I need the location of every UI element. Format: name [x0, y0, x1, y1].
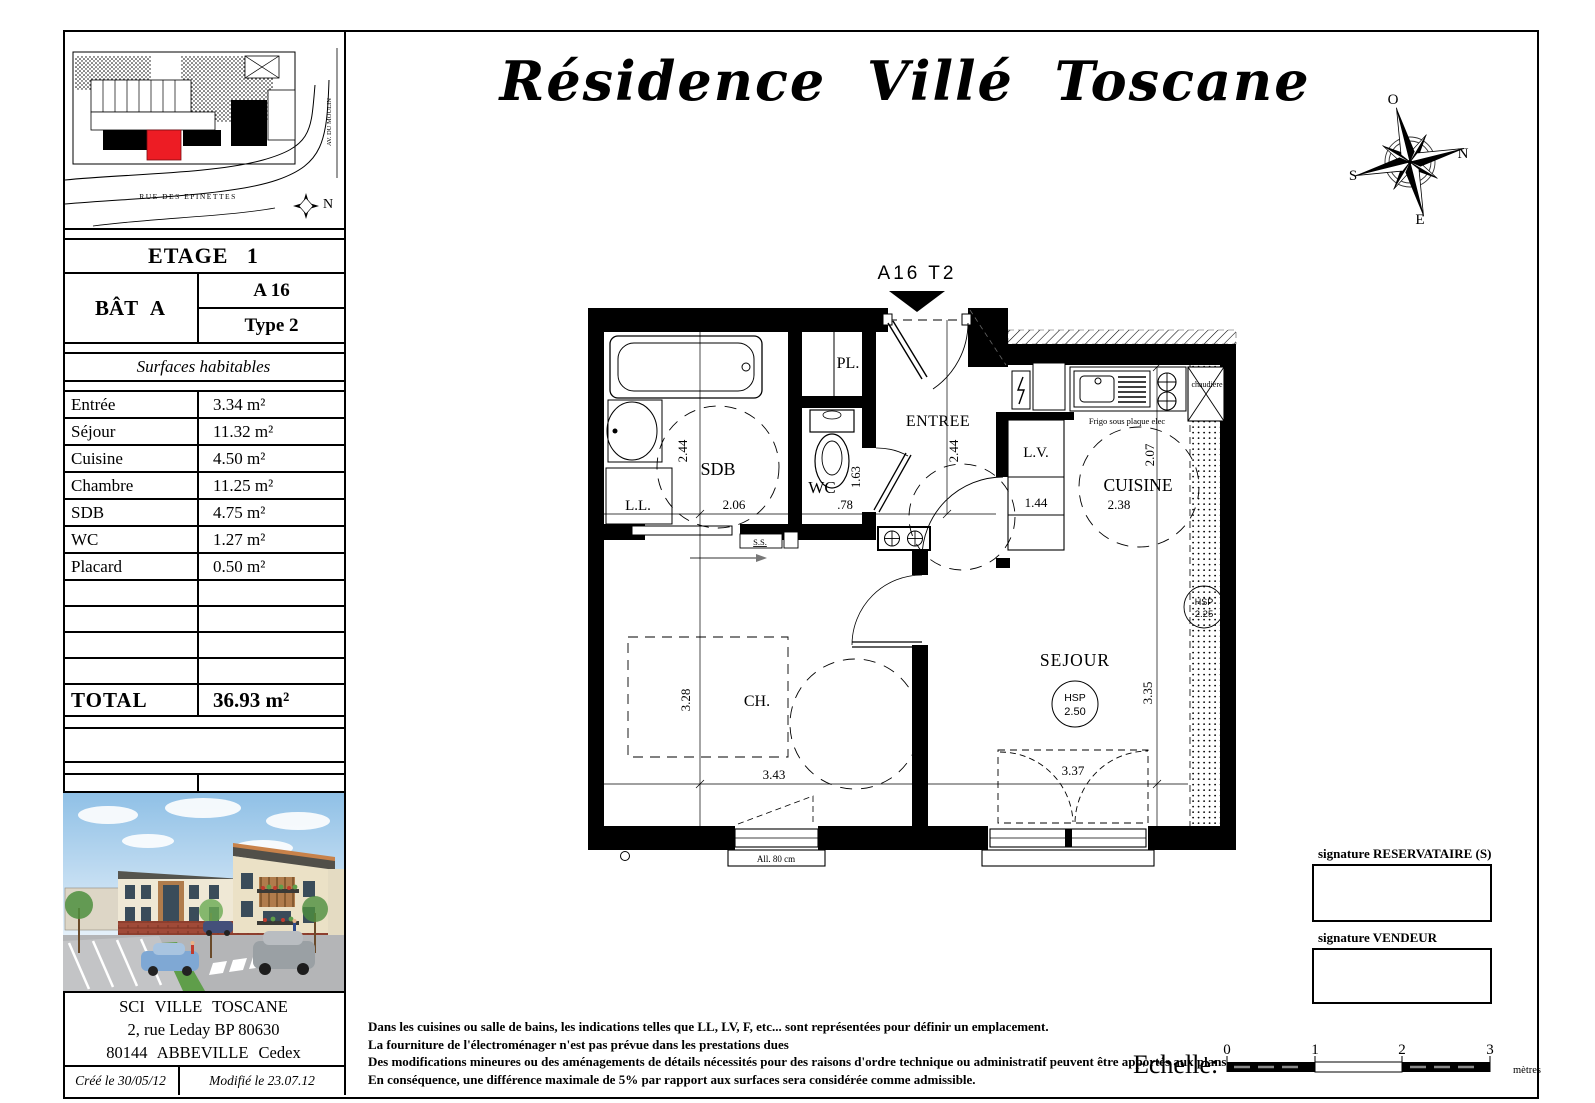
table-row: Cuisine 4.50 m²: [63, 446, 344, 473]
washbasin-icon: [607, 400, 662, 462]
room-label: Placard: [63, 554, 199, 579]
allege-label: All. 80 cm: [757, 854, 795, 864]
room-label: SDB: [63, 500, 199, 525]
room-label-sdb: SDB: [700, 459, 735, 479]
hsp-label-2: HSP: [1195, 597, 1214, 607]
unit-tag: A16 T2: [878, 263, 957, 284]
spacer-row: [63, 763, 344, 775]
compass-rose-icon: O N S E: [1332, 82, 1472, 237]
room-label-placard: PL.: [837, 355, 860, 372]
created-date: Créé le 30/05/12: [63, 1067, 180, 1095]
terrace-hatch: [1008, 330, 1236, 344]
spacer-row: [63, 230, 344, 240]
empty-row: [63, 633, 344, 659]
compass-east-label: E: [1415, 212, 1424, 228]
hsp-sejour: HSP 2.50: [1052, 681, 1098, 727]
room-area: 3.34 m²: [199, 392, 344, 417]
room-area: 4.50 m²: [199, 446, 344, 471]
dim-sejour-w: 3.37: [1062, 763, 1085, 778]
surfaces-title: Surfaces habitables: [63, 354, 344, 382]
hsp-loggia-value: 2.25: [1195, 609, 1214, 620]
dim-entree-h: 2.44: [946, 439, 961, 462]
site-north-label: N: [323, 197, 333, 212]
company-street: 2, rue Leday BP 80630: [128, 1018, 280, 1041]
frigo-note: Frigo sous plaque elec: [1089, 416, 1165, 426]
empty-row: [63, 581, 344, 607]
signature-reservataire-label: signature RESERVATAIRE (S): [1318, 846, 1491, 862]
highlighted-unit: [147, 130, 181, 160]
total-row: TOTAL 36.93 m²: [63, 685, 344, 717]
dim-cuisine-w: 2.38: [1108, 497, 1131, 512]
street-label: RUE DES EPINETTES: [139, 192, 237, 201]
table-row: Chambre 11.25 m²: [63, 473, 344, 500]
scale-tick-0: 0: [1223, 1042, 1231, 1058]
boiler-box: [1188, 367, 1224, 421]
chaudiere-note: chaudière: [1191, 380, 1223, 389]
left-panel: RUE DES EPINETTES AV. DU MOULIN N ETAGE …: [63, 30, 346, 1095]
room-area: 0.50 m²: [199, 554, 344, 579]
company-address: SCI VILLE TOSCANE 2, rue Leday BP 80630 …: [63, 993, 344, 1067]
floor-plan: A16 T2: [570, 255, 1250, 870]
room-label: WC: [63, 527, 199, 552]
room-label-ll: L.L.: [625, 498, 651, 514]
room-label: Séjour: [63, 419, 199, 444]
room-label-lv: L.V.: [1023, 445, 1049, 461]
table-row: Séjour 11.32 m²: [63, 419, 344, 446]
room-label-entree: ENTREE: [906, 413, 970, 430]
dim-ch-w: 3.43: [763, 767, 786, 782]
hsp-sejour-value: 2.50: [1064, 706, 1085, 718]
compass-west-label: O: [1388, 92, 1399, 108]
company-city: 80144 ABBEVILLE Cedex: [106, 1041, 300, 1064]
wc-door: [874, 448, 911, 512]
room-label: Entrée: [63, 392, 199, 417]
bedroom-window: All. 80 cm: [728, 796, 825, 866]
radiator-icon: [878, 527, 930, 550]
room-area: 4.75 m²: [199, 500, 344, 525]
room-area: 1.27 m²: [199, 527, 344, 552]
site-compass-icon: N: [293, 193, 333, 219]
spacer-row: [63, 382, 344, 392]
dim-sejour-h: 3.35: [1140, 682, 1155, 705]
scale-tick-2: 2: [1398, 1042, 1406, 1058]
toilet-icon: [810, 410, 854, 488]
room-label: Chambre: [63, 473, 199, 498]
room-label-chambre: CH.: [744, 693, 770, 710]
dim-wc-w: .78: [837, 498, 853, 512]
empty-row: [63, 607, 344, 633]
site-plan-drawing: RUE DES EPINETTES AV. DU MOULIN N: [63, 30, 344, 228]
dishwasher-unit: [1008, 420, 1064, 550]
scale-bar: 0 1 2 3 mètres: [1200, 1038, 1545, 1093]
hsp-label: HSP: [1064, 692, 1086, 704]
table-row: SDB 4.75 m²: [63, 500, 344, 527]
lot-number: A 16: [199, 274, 344, 309]
table-row: Entrée 3.34 m²: [63, 392, 344, 419]
company-name: SCI VILLE TOSCANE: [119, 995, 288, 1018]
building-label: BÂT A: [63, 274, 199, 342]
scale-unit: mètres: [1513, 1065, 1541, 1076]
ss-label: S.S.: [753, 537, 767, 547]
table-row: WC 1.27 m²: [63, 527, 344, 554]
page-title: Résidence Villé Toscane: [550, 42, 1260, 120]
kitchen-counter: [1070, 367, 1186, 411]
room-label: Cuisine: [63, 446, 199, 471]
total-label: TOTAL: [63, 685, 199, 715]
dim-entree-w: 1.44: [1025, 495, 1048, 510]
spacer-row: [63, 344, 344, 354]
entrance-marker-icon: [889, 291, 945, 312]
room-area: 11.32 m²: [199, 419, 344, 444]
site-plan: RUE DES EPINETTES AV. DU MOULIN N: [63, 30, 344, 230]
dim-ch-h: 3.28: [678, 689, 693, 712]
signature-reservataire-box[interactable]: [1312, 864, 1492, 922]
room-label-wc: WC: [808, 478, 835, 497]
room-label-sejour: SEJOUR: [1040, 650, 1110, 670]
scale-tick-1: 1: [1311, 1042, 1319, 1058]
dim-sdb-h: 2.44: [675, 439, 690, 462]
dates-row: Créé le 30/05/12 Modifié le 23.07.12: [63, 1067, 344, 1095]
dim-wc-h: 1.63: [849, 466, 863, 488]
floor-title: ETAGE 1: [63, 240, 344, 274]
compass-north-label: N: [1458, 146, 1469, 162]
empty-row: [63, 775, 344, 793]
kitchen-door-arc: [922, 477, 1003, 558]
compass-south-label: S: [1349, 168, 1357, 184]
scale-tick-3: 3: [1486, 1042, 1494, 1058]
loggia-strip: [1190, 365, 1220, 826]
electrical-box: [1012, 363, 1065, 410]
lot-type: Type 2: [199, 309, 344, 342]
empty-row: [63, 729, 344, 763]
signature-vendeur-label: signature VENDEUR: [1318, 930, 1437, 946]
disclaimer-line: Dans les cuisines ou salle de bains, les…: [368, 1018, 1548, 1036]
bathtub-icon: [610, 336, 762, 398]
room-label-cuisine: CUISINE: [1103, 475, 1172, 495]
empty-row: [63, 659, 344, 685]
avenue-label: AV. DU MOULIN: [326, 98, 333, 146]
total-value: 36.93 m²: [199, 685, 344, 715]
spacer-row: [63, 717, 344, 729]
dim-cuisine-h: 2.07: [1142, 443, 1157, 466]
entrance-door: [883, 314, 971, 389]
towel-radiator: S.S.: [740, 532, 798, 548]
section-marker: [621, 852, 630, 861]
table-row: Placard 0.50 m²: [63, 554, 344, 581]
signature-vendeur-box[interactable]: [1312, 948, 1492, 1004]
modified-date: Modifié le 23.07.12: [180, 1067, 344, 1095]
building-block: BÂT A A 16 Type 2: [63, 274, 344, 344]
room-area: 11.25 m²: [199, 473, 344, 498]
hall-door: [852, 575, 922, 647]
dim-sdb-w: 2.06: [723, 497, 746, 512]
washing-machine-box: [606, 468, 672, 524]
building-rendering: [63, 793, 344, 993]
